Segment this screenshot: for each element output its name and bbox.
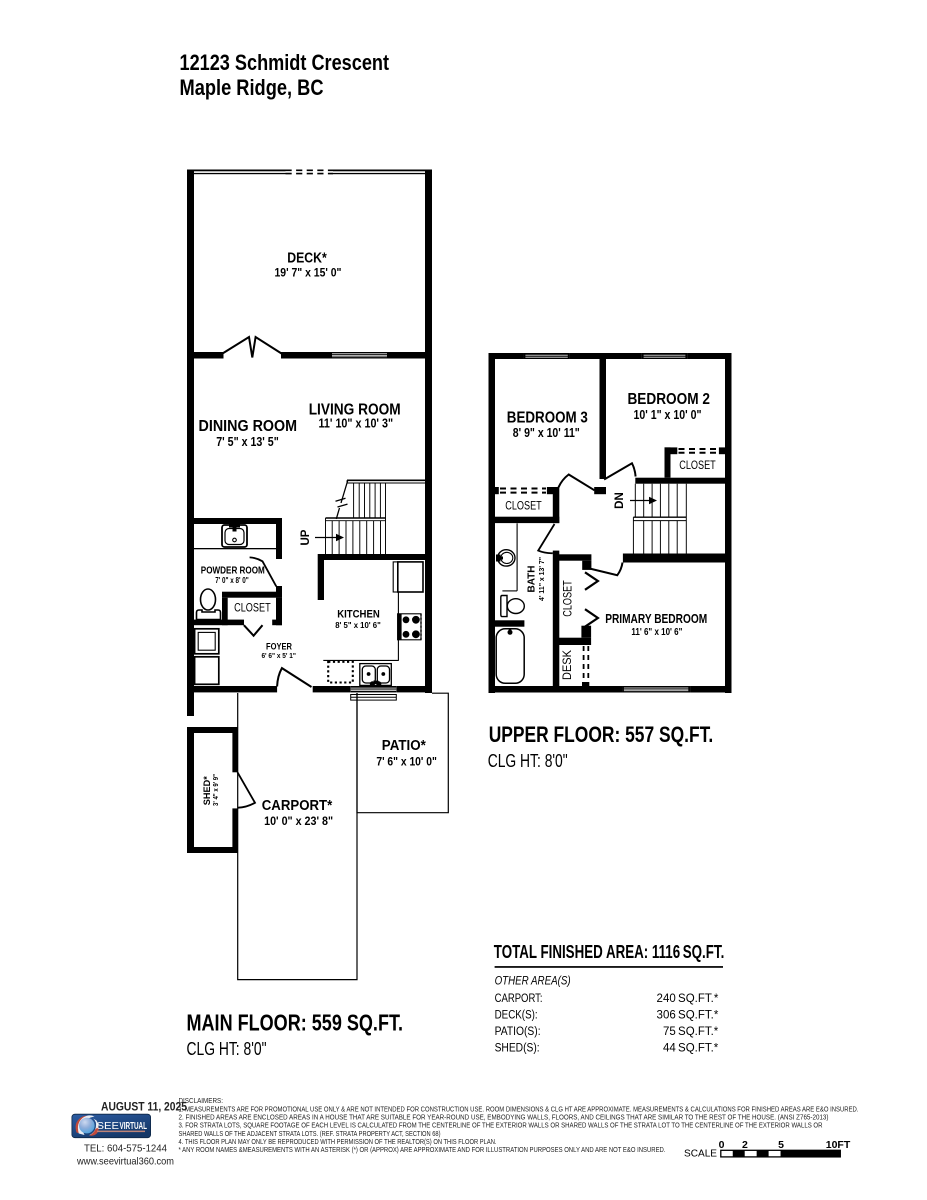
svg-text:75 SQ.FT.*: 75 SQ.FT.* xyxy=(663,1026,719,1038)
svg-text:1. MEASUREMENTS ARE FOR PROMOT: 1. MEASUREMENTS ARE FOR PROMOTIONAL USE … xyxy=(179,1106,859,1113)
svg-text:DN: DN xyxy=(614,492,626,509)
svg-text:CLOSET: CLOSET xyxy=(679,460,716,472)
svg-text:7' 0" x 8' 0": 7' 0" x 8' 0" xyxy=(215,576,249,585)
svg-text:10FT: 10FT xyxy=(826,1139,851,1151)
svg-text:TEL: 604-575-1244: TEL: 604-575-1244 xyxy=(84,1142,167,1154)
svg-text:PATIO(S):: PATIO(S): xyxy=(495,1026,541,1038)
svg-text:8' 9" x 10' 11": 8' 9" x 10' 11" xyxy=(513,426,580,440)
svg-text:TOTAL FINISHED AREA: 1116 SQ.F: TOTAL FINISHED AREA: 1116 SQ.FT. xyxy=(494,942,725,962)
svg-text:6' 6" x 5' 1": 6' 6" x 5' 1" xyxy=(261,651,296,660)
svg-text:4. THIS FLOOR PLAN MAY ONLY BE: 4. THIS FLOOR PLAN MAY ONLY BE REPRODUCE… xyxy=(179,1139,497,1146)
svg-text:KITCHEN: KITCHEN xyxy=(337,609,380,621)
svg-text:BATH: BATH xyxy=(526,566,538,593)
svg-text:CARPORT*: CARPORT* xyxy=(262,798,333,814)
svg-text:DINING ROOM: DINING ROOM xyxy=(199,418,298,435)
svg-text:DISCLAIMERS:: DISCLAIMERS: xyxy=(179,1098,224,1105)
svg-text:7' 5" x 13' 5": 7' 5" x 13' 5" xyxy=(216,435,279,449)
svg-text:DECK(S):: DECK(S): xyxy=(495,1009,538,1021)
svg-text:CLOSET: CLOSET xyxy=(505,501,542,513)
svg-text:4' 11" x 13' 7": 4' 11" x 13' 7" xyxy=(537,557,546,601)
svg-text:* ANY ROOM NAMES &MEASUREMENT: * ANY ROOM NAMES &MEASUREMENTS WITH AN A… xyxy=(179,1147,666,1154)
svg-text:POWDER ROOM: POWDER ROOM xyxy=(201,565,265,577)
svg-text:UPPER FLOOR: 557 SQ.FT.: UPPER FLOOR: 557 SQ.FT. xyxy=(489,722,714,747)
svg-text:BEDROOM 2: BEDROOM 2 xyxy=(627,391,710,408)
svg-text:SHED*: SHED* xyxy=(202,776,213,805)
svg-text:7' 6" x 10' 0": 7' 6" x 10' 0" xyxy=(376,755,437,769)
svg-text:44 SQ.FT.*: 44 SQ.FT.* xyxy=(663,1043,719,1055)
svg-text:306 SQ.FT.*: 306 SQ.FT.* xyxy=(657,1009,719,1021)
svg-text:CARPORT:: CARPORT: xyxy=(495,993,543,1005)
svg-text:11' 10" x 10' 3": 11' 10" x 10' 3" xyxy=(319,417,394,431)
svg-text:Maple Ridge, BC: Maple Ridge, BC xyxy=(180,75,324,100)
svg-text:PATIO*: PATIO* xyxy=(382,738,426,754)
svg-text:SHED(S):: SHED(S): xyxy=(495,1043,540,1055)
svg-text:8' 5" x 10' 6": 8' 5" x 10' 6" xyxy=(335,621,381,630)
svg-text:VIRTUAL: VIRTUAL xyxy=(120,1121,148,1132)
svg-text:11' 6" x 10' 6": 11' 6" x 10' 6" xyxy=(631,627,682,638)
svg-text:BEDROOM 3: BEDROOM 3 xyxy=(507,410,588,427)
svg-text:CLG HT: 8'0": CLG HT: 8'0" xyxy=(187,1038,267,1059)
svg-text:SCALE: SCALE xyxy=(684,1148,717,1160)
svg-text:CLOSET: CLOSET xyxy=(234,603,271,615)
svg-text:www.seevirtual360.com: www.seevirtual360.com xyxy=(76,1156,174,1168)
svg-text:19' 7" x 15' 0": 19' 7" x 15' 0" xyxy=(275,266,342,280)
svg-text:CLOSET: CLOSET xyxy=(563,580,575,617)
svg-text:3. FOR STRATA LOTS, SQUARE FOO: 3. FOR STRATA LOTS, SQUARE FOOTAGE OF EA… xyxy=(179,1123,823,1130)
svg-text:SEE: SEE xyxy=(97,1121,120,1132)
svg-text:MAIN FLOOR: 559 SQ.FT.: MAIN FLOOR: 559 SQ.FT. xyxy=(187,1010,404,1036)
svg-text:10' 1" x 10' 0": 10' 1" x 10' 0" xyxy=(634,408,702,422)
svg-text:2: 2 xyxy=(742,1139,748,1151)
svg-text:DESK: DESK xyxy=(562,650,574,680)
svg-text:SHARED WALLS OF THE ADJACENT S: SHARED WALLS OF THE ADJACENT STRATA LOTS… xyxy=(179,1131,441,1138)
svg-text:240 SQ.FT.*: 240 SQ.FT.* xyxy=(657,993,719,1005)
svg-text:10' 0" x 23' 8": 10' 0" x 23' 8" xyxy=(264,814,333,828)
svg-text:0: 0 xyxy=(719,1139,725,1151)
svg-text:5: 5 xyxy=(778,1139,784,1151)
svg-text:2. FINISHED AREAS ARE ENCLOSED: 2. FINISHED AREAS ARE ENCLOSED AREAS IN … xyxy=(179,1115,829,1122)
svg-text:12123 Schmidt Crescent: 12123 Schmidt Crescent xyxy=(180,50,390,75)
svg-text:3' 4" x 9' 9": 3' 4" x 9' 9" xyxy=(213,774,220,806)
svg-text:PRIMARY BEDROOM: PRIMARY BEDROOM xyxy=(605,612,707,626)
svg-text:AUGUST 11, 2025: AUGUST 11, 2025 xyxy=(101,1102,188,1114)
svg-text:OTHER AREA(S): OTHER AREA(S) xyxy=(495,974,571,988)
svg-text:UP: UP xyxy=(300,529,312,545)
svg-text:CLG HT: 8'0": CLG HT: 8'0" xyxy=(488,750,568,771)
svg-text:DECK*: DECK* xyxy=(287,251,327,267)
